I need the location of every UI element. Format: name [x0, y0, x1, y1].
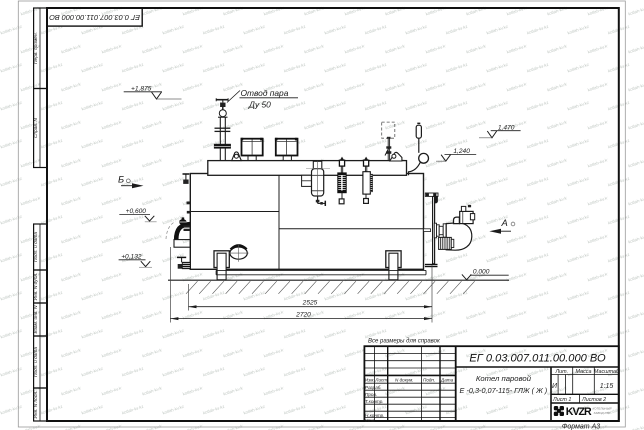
svg-text:КОТЕЛЬНЫЙ: КОТЕЛЬНЫЙ — [593, 407, 613, 411]
svg-text:Подп. и дата: Подп. и дата — [33, 347, 39, 377]
svg-text:Утв.: Утв. — [365, 418, 375, 423]
svg-text:Масштаб: Масштаб — [594, 369, 620, 375]
svg-text:Формат А3: Формат А3 — [562, 424, 600, 430]
svg-text:ЕГ 0.03.007.011.00.000 ВО: ЕГ 0.03.007.011.00.000 ВО — [469, 353, 606, 365]
svg-text:2720: 2720 — [295, 312, 311, 319]
svg-text:Дата: Дата — [440, 378, 454, 383]
svg-text:+0,600: +0,600 — [126, 208, 147, 215]
svg-text:А: А — [501, 217, 508, 228]
svg-text:Все размеры для справок: Все размеры для справок — [368, 339, 441, 345]
svg-text:Отвод пара: Отвод пара — [241, 88, 289, 98]
svg-text:Инв. N подл.: Инв. N подл. — [33, 390, 39, 418]
svg-text:Разраб.: Разраб. — [365, 385, 382, 390]
svg-text:Масса: Масса — [576, 369, 592, 375]
svg-text:Котел паровой: Котел паровой — [476, 374, 532, 383]
svg-text:Изм.: Изм. — [365, 378, 375, 383]
svg-text:Е -0,3-0,07-115- ГЛЖ ( Ж ): Е -0,3-0,07-115- ГЛЖ ( Ж ) — [460, 386, 548, 395]
svg-text:Взам. инв. N: Взам. инв. N — [33, 305, 39, 333]
svg-text:Листов 2: Листов 2 — [581, 397, 606, 403]
svg-text:Справ. N: Справ. N — [33, 117, 39, 138]
svg-text:N докум.: N докум. — [395, 378, 414, 383]
svg-text:Пров.: Пров. — [365, 392, 377, 397]
svg-text:Инв. N дубл.: Инв. N дубл. — [33, 273, 39, 301]
svg-text:Т.контр.: Т.контр. — [365, 399, 384, 404]
svg-text:Подп.: Подп. — [423, 378, 435, 383]
svg-text:Лист 1: Лист 1 — [552, 397, 571, 403]
svg-text:ЗАВОД РЗР: ЗАВОД РЗР — [594, 411, 611, 415]
svg-text:Подп. и дата: Подп. и дата — [33, 232, 39, 262]
svg-text:Ду 50: Ду 50 — [248, 100, 271, 110]
svg-text:Перв. примен.: Перв. примен. — [33, 32, 39, 64]
svg-text:KVZR: KVZR — [566, 406, 592, 418]
svg-text:0,000: 0,000 — [473, 269, 490, 276]
svg-text:1:15: 1:15 — [600, 383, 614, 390]
svg-text:Лист: Лист — [374, 378, 387, 383]
svg-text:Лит.: Лит. — [554, 369, 568, 375]
svg-text:2525: 2525 — [302, 300, 318, 307]
svg-text:Б: Б — [118, 174, 124, 185]
svg-text:+0,132: +0,132 — [121, 253, 142, 260]
svg-text:ЕГ 0.03.007.011.00.000 ВО: ЕГ 0.03.007.011.00.000 ВО — [49, 13, 140, 22]
